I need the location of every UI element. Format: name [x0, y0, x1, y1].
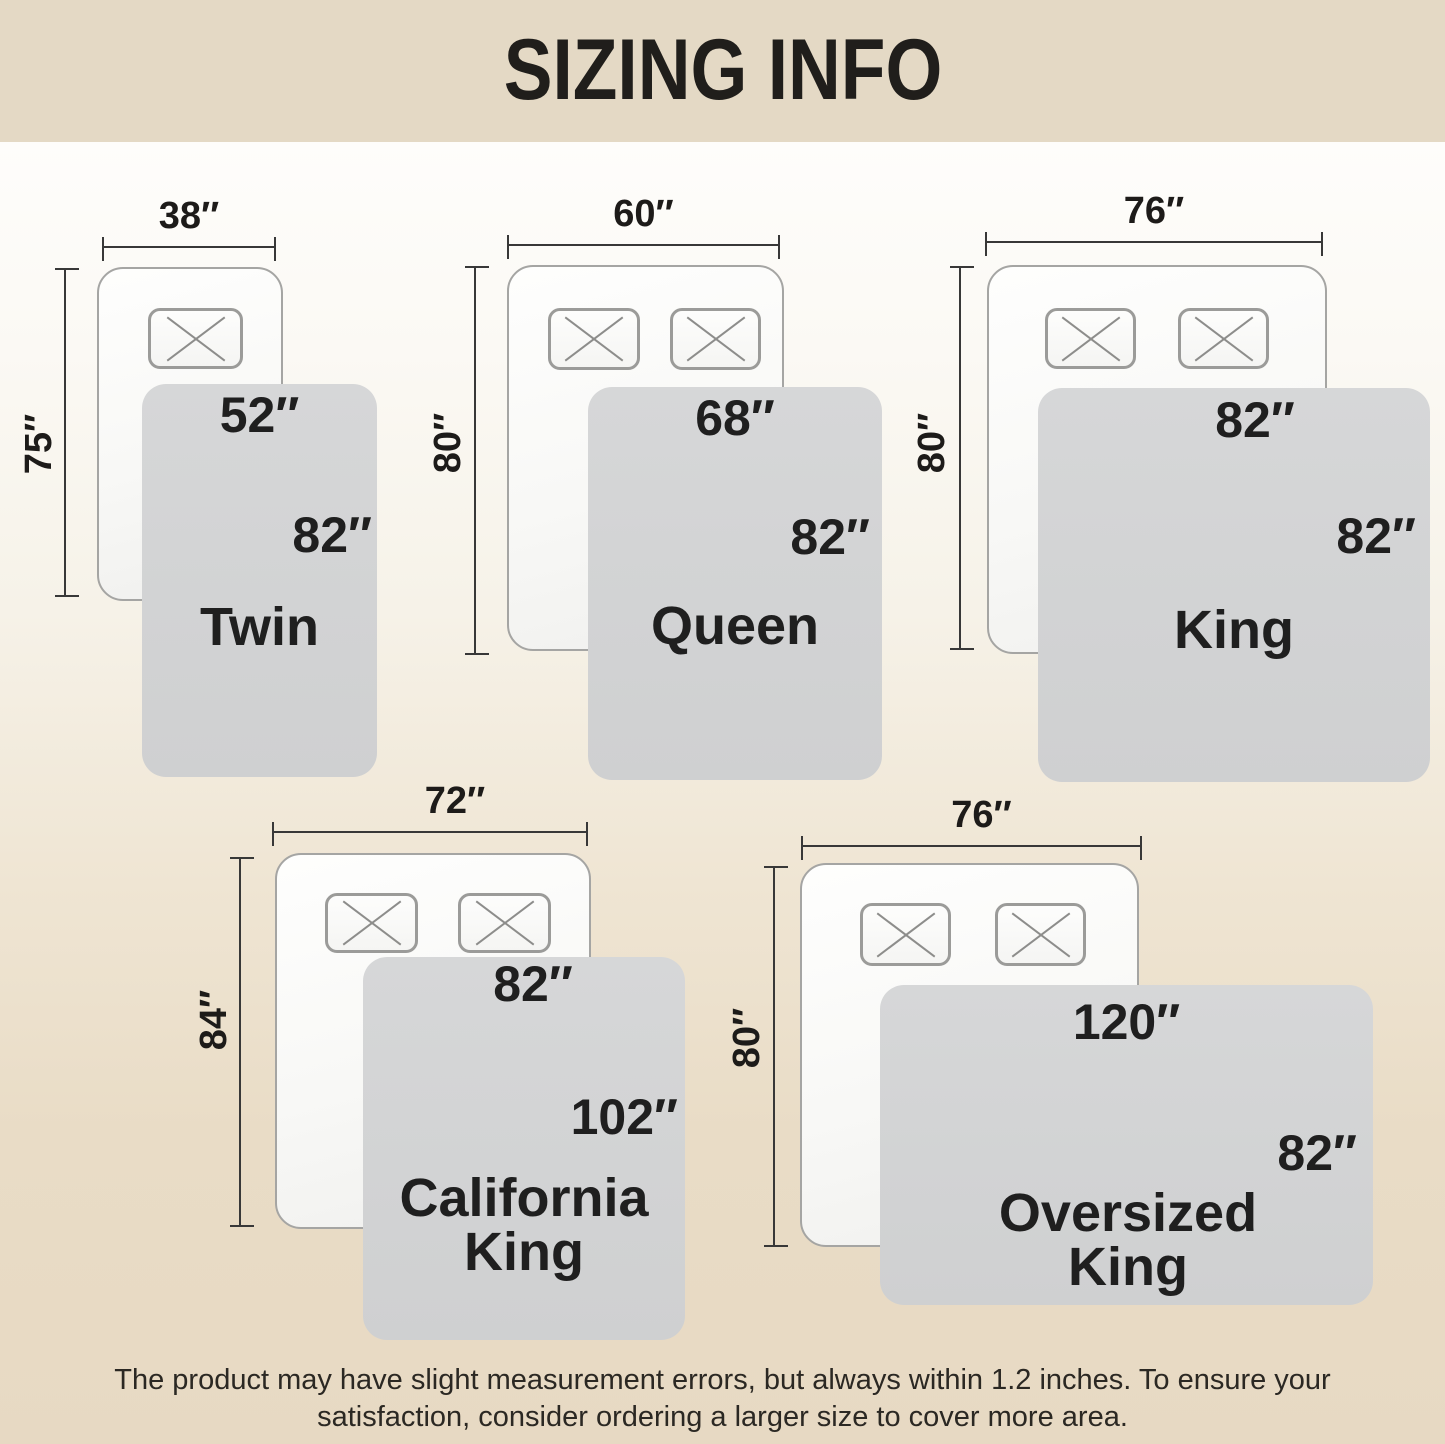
pillow-x-icon — [151, 311, 240, 366]
queen-pillow-right — [670, 308, 761, 370]
california-king-blanket-width-label: 82″ — [363, 956, 703, 1012]
oversized-king-pillow-left — [860, 903, 951, 966]
california-king-pillow-right — [458, 893, 551, 953]
oversized-king-blanket-length-label: 82″ — [880, 1125, 1357, 1181]
disclaimer-line-2: satisfaction, consider ordering a larger… — [0, 1399, 1445, 1436]
twin-size-name: Twin — [142, 600, 377, 654]
king-size-name: King — [1038, 603, 1430, 657]
oversized-king-bed-width-label: 76″ — [811, 792, 1152, 838]
oversized-king-bed-length-label: 80″ — [722, 978, 772, 1098]
twin-blanket-length-label: 82″ — [142, 507, 372, 563]
queen-pillow-left — [548, 308, 640, 370]
king-pillow-right — [1178, 308, 1269, 369]
california-king-length-dimension-line — [239, 857, 241, 1227]
oversized-king-blanket-width-label: 120″ — [880, 994, 1373, 1050]
california-king-width-dimension-line — [272, 831, 588, 833]
pillow-x-icon — [551, 311, 637, 367]
disclaimer-text: The product may have slight measurement … — [0, 1362, 1445, 1436]
king-bed-width-label: 76″ — [985, 188, 1323, 234]
pillow-x-icon — [998, 906, 1083, 963]
california-king-blanket-length-label: 102″ — [363, 1089, 678, 1145]
header-banner: SIZING INFO — [0, 0, 1445, 142]
queen-size-name: Queen — [588, 599, 882, 653]
oversized-king-width-dimension-line — [801, 845, 1142, 847]
california-king-pillow-left — [325, 893, 418, 953]
california-king-size-name: California King — [339, 1171, 709, 1279]
page-title: SIZING INFO — [503, 0, 942, 140]
twin-length-dimension-line — [64, 268, 66, 597]
california-king-bed-width-label: 72″ — [290, 778, 620, 824]
queen-blanket-width-label: 68″ — [588, 390, 882, 446]
twin-width-dimension-line — [102, 246, 276, 248]
twin-pillow — [148, 308, 243, 369]
twin-bed-width-label: 38″ — [89, 193, 289, 239]
sizing-info-graphic: SIZING INFO 38″ 75″ 52″ 82″ Twin 60″ 80″… — [0, 0, 1445, 1444]
oversized-king-pillow-right — [995, 903, 1086, 966]
queen-bed-length-label: 80″ — [423, 383, 473, 503]
king-bed-length-label: 80″ — [907, 383, 957, 503]
queen-length-dimension-line — [474, 266, 476, 655]
twin-blanket-width-label: 52″ — [142, 387, 377, 443]
queen-width-dimension-line — [507, 244, 780, 246]
king-blanket-length-label: 82″ — [1038, 508, 1416, 564]
queen-bed-width-label: 60″ — [507, 191, 780, 237]
queen-blanket-length-label: 82″ — [588, 509, 870, 565]
pillow-x-icon — [1181, 311, 1266, 366]
california-king-bed-length-label: 84″ — [189, 960, 239, 1080]
king-blanket-width-label: 82″ — [1070, 392, 1440, 448]
california-king-blanket-shape — [363, 957, 685, 1340]
king-width-dimension-line — [985, 241, 1323, 243]
disclaimer-line-1: The product may have slight measurement … — [0, 1362, 1445, 1399]
king-length-dimension-line — [959, 266, 961, 650]
pillow-x-icon — [1048, 311, 1133, 366]
oversized-king-length-dimension-line — [773, 866, 775, 1247]
pillow-x-icon — [673, 311, 758, 367]
pillow-x-icon — [461, 896, 548, 950]
twin-bed-length-label: 75″ — [14, 384, 64, 504]
king-pillow-left — [1045, 308, 1136, 369]
pillow-x-icon — [328, 896, 415, 950]
oversized-king-size-name: Oversized King — [948, 1186, 1308, 1294]
pillow-x-icon — [863, 906, 948, 963]
